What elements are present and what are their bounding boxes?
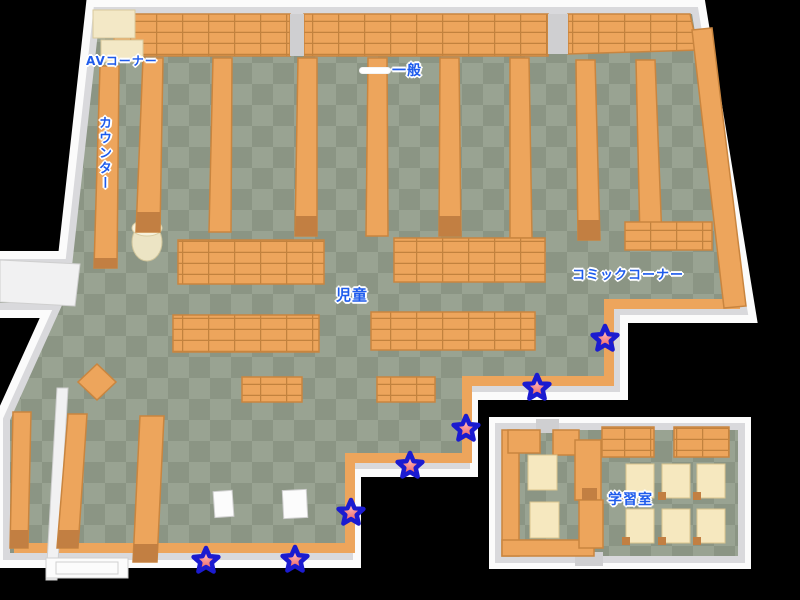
kiosk: [213, 490, 234, 517]
bookshelf: [209, 58, 232, 232]
low-shelf: [377, 377, 435, 402]
study-desk: [528, 455, 557, 490]
chair: [658, 537, 666, 545]
label-av-corner: AVコーナー: [86, 52, 158, 69]
top-shelf-row: [114, 14, 698, 56]
entrance-wall: [0, 260, 80, 306]
shelf-end: [136, 212, 160, 232]
low-shelf: [371, 312, 535, 350]
entrance-door: [46, 558, 128, 578]
label-children: 児童: [336, 284, 368, 305]
bookshelf: [295, 58, 317, 236]
comic-shelf: [625, 222, 712, 250]
shelf-end: [439, 216, 461, 236]
doorway-gap: [548, 14, 568, 54]
bookshelf: [366, 58, 388, 236]
counter-end: [94, 258, 117, 268]
bookshelf: [304, 14, 548, 56]
study-desk: [662, 464, 690, 498]
study-desk: [626, 509, 654, 543]
chair: [693, 537, 701, 545]
shelf-end: [295, 216, 317, 236]
divider-shelf: [579, 500, 603, 548]
label-general: 一般: [392, 60, 422, 80]
study-desk: [697, 464, 725, 498]
study-desk: [662, 509, 690, 543]
study-desk: [530, 502, 559, 538]
chair: [693, 492, 701, 500]
floor-map-svg: [0, 0, 800, 600]
label-comic-corner: コミックコーナー: [572, 264, 684, 283]
shelf-end: [133, 544, 158, 562]
bookshelf: [510, 58, 532, 238]
low-shelf: [178, 240, 324, 284]
kiosk: [282, 489, 307, 518]
doorway-gap: [290, 14, 304, 56]
bookshelf: [568, 14, 698, 54]
shelf-end: [578, 220, 600, 240]
chair: [658, 492, 666, 500]
wall-shelf: [674, 427, 729, 457]
study-desk: [697, 509, 725, 543]
low-shelf: [173, 315, 319, 352]
shelf-end: [57, 530, 80, 548]
wall-shelf: [508, 430, 540, 453]
shelf-end: [10, 530, 28, 548]
label-counter: カウンター: [94, 116, 113, 191]
library-map: AVコーナー カウンター 一般 児童 コミックコーナー 学習室: [0, 0, 800, 600]
chair: [622, 537, 630, 545]
bookshelf: [576, 60, 600, 240]
wall-shelf: [602, 427, 654, 457]
bookshelf: [439, 58, 461, 236]
bookshelf: [10, 412, 31, 548]
low-shelf: [242, 377, 302, 402]
av-shelf: [93, 10, 135, 38]
general-label-pointer: [360, 68, 390, 73]
divider-gap: [582, 488, 597, 500]
label-study-room: 学習室: [608, 489, 653, 509]
low-shelf: [394, 238, 545, 282]
